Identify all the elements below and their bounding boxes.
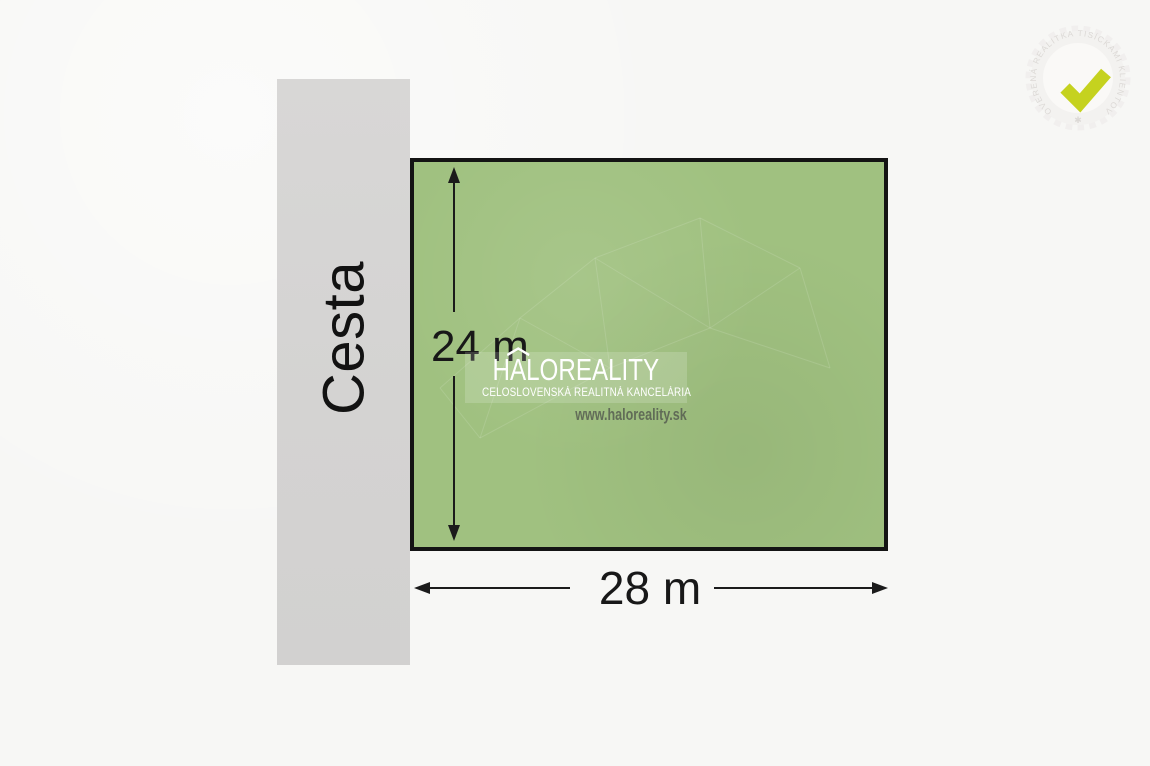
website-url: www.haloreality.sk [465,406,687,425]
watermark: HALOREALITY CELOSLOVENSKÁ REALITNÁ KANCE… [465,352,687,403]
width-dimension-line [430,587,570,589]
arrow-up-icon [448,167,460,183]
house-roof-icon [506,347,531,356]
width-dimension-label: 28 m [599,562,701,615]
arrow-left-icon [414,582,430,594]
width-dimension-line [714,587,872,589]
height-dimension-line [453,182,455,312]
arrow-right-icon [872,582,888,594]
plot-diagram: Cesta 24 m 28 m [0,0,1150,766]
road-label: Cesta [311,261,378,415]
arrow-down-icon [448,525,460,541]
badge-star: ✱ [1074,115,1082,125]
verified-badge: OVERENÁ REALITKA TISÍCKAMI KLIENTOV ✱ [1022,22,1134,134]
brand-subtitle: CELOSLOVENSKÁ REALITNÁ KANCELÁRIA [482,386,691,400]
brand-logo: HALOREALITY [493,354,660,385]
height-dimension-line [453,376,455,526]
